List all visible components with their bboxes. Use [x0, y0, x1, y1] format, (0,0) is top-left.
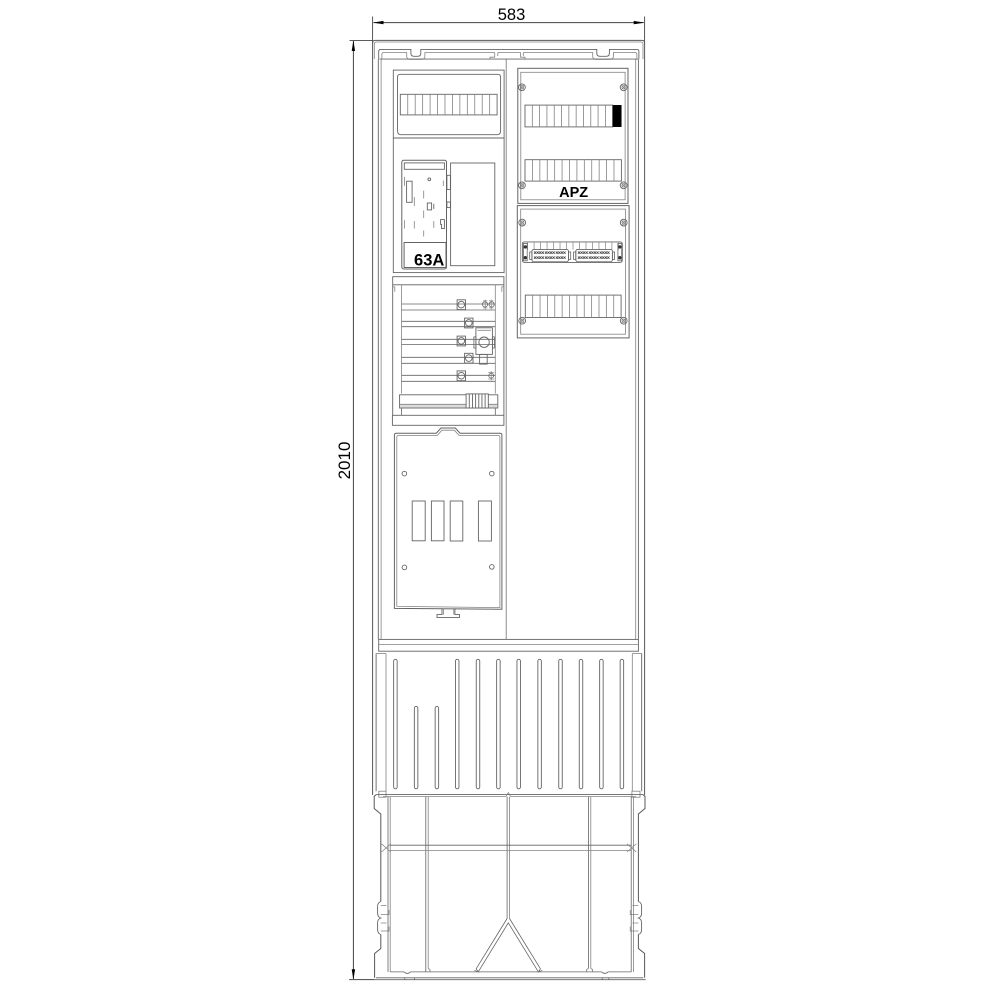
svg-text:APZ: APZ [559, 185, 588, 201]
svg-text:583: 583 [498, 6, 526, 24]
svg-text:2010: 2010 [335, 442, 354, 480]
svg-text:63A: 63A [414, 251, 444, 269]
